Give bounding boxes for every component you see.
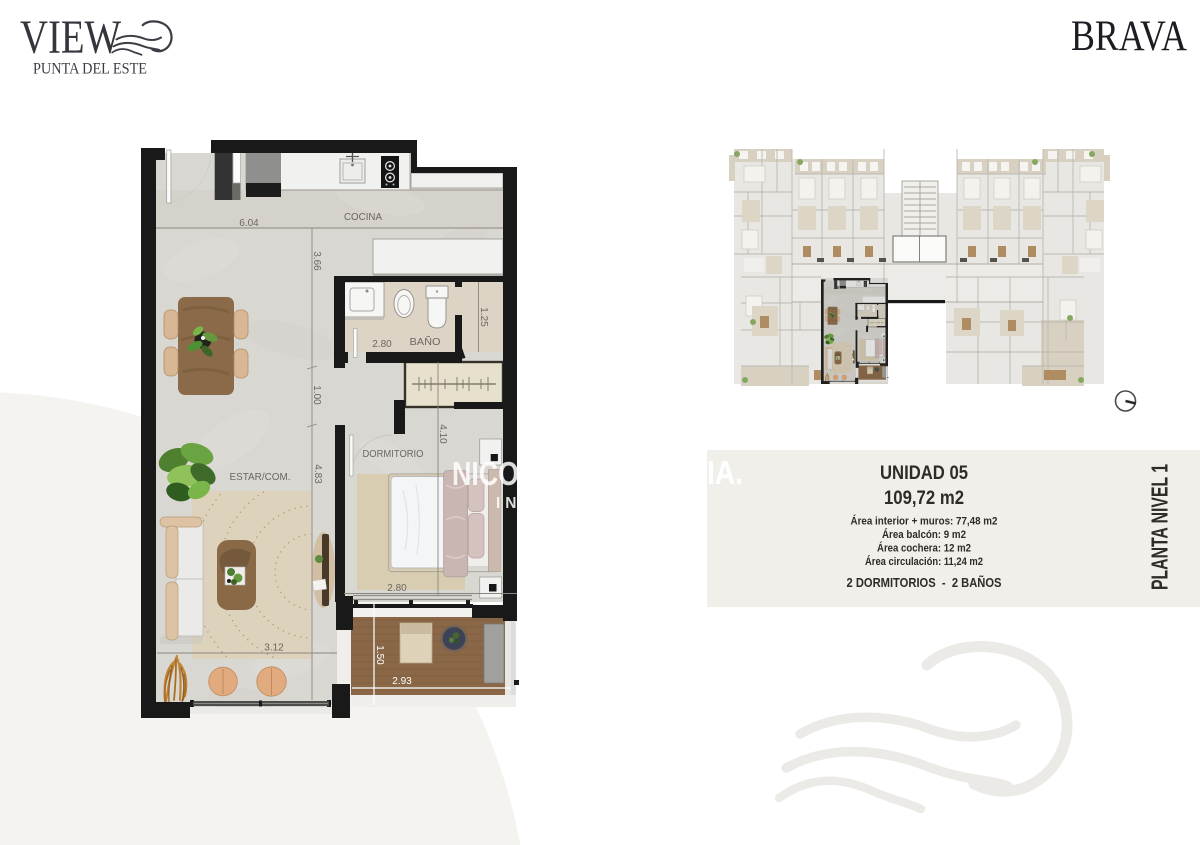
svg-text:UNIDAD 05: UNIDAD 05: [880, 462, 968, 484]
svg-text:2.93: 2.93: [392, 676, 412, 687]
svg-text:2.80: 2.80: [372, 339, 392, 350]
svg-text:PUNTA DEL ESTE: PUNTA DEL ESTE: [33, 61, 147, 78]
svg-text:4.83: 4.83: [312, 464, 323, 484]
svg-text:IA.: IA.: [707, 454, 743, 491]
svg-text:2.80: 2.80: [387, 583, 407, 594]
svg-text:3.66: 3.66: [311, 251, 322, 271]
svg-text:1.50: 1.50: [374, 645, 385, 665]
svg-text:Área cochera: 12 m2: Área cochera: 12 m2: [877, 542, 971, 555]
svg-text:1.25: 1.25: [478, 307, 489, 327]
svg-text:BRAVA: BRAVA: [1071, 13, 1187, 60]
svg-text:VIEW: VIEW: [20, 11, 122, 64]
svg-text:1.00: 1.00: [311, 385, 322, 405]
svg-text:Área balcón: 9 m2: Área balcón: 9 m2: [882, 528, 966, 541]
svg-text:NICO: NICO: [452, 455, 519, 492]
svg-text:ESTAR/COM.: ESTAR/COM.: [230, 471, 291, 483]
svg-text:BAÑO: BAÑO: [410, 335, 441, 348]
svg-text:DORMITORIO: DORMITORIO: [363, 448, 424, 460]
svg-text:109,72 m2: 109,72 m2: [884, 487, 964, 509]
svg-text:IN: IN: [496, 495, 522, 512]
svg-text:6.04: 6.04: [239, 218, 259, 229]
svg-text:COCINA: COCINA: [344, 211, 382, 223]
svg-text:3.12: 3.12: [264, 643, 284, 654]
svg-text:Área interior + muros: 77,48 m: Área interior + muros: 77,48 m2: [851, 515, 998, 528]
svg-text:4.10: 4.10: [437, 424, 448, 444]
svg-text:Área circulación: 11,24 m2: Área circulación: 11,24 m2: [865, 555, 983, 568]
svg-text:PLANTA NIVEL 1: PLANTA NIVEL 1: [1147, 464, 1173, 590]
svg-text:2 DORMITORIOS - 2 BAÑOS: 2 DORMITORIOS - 2 BAÑOS: [847, 575, 1002, 590]
